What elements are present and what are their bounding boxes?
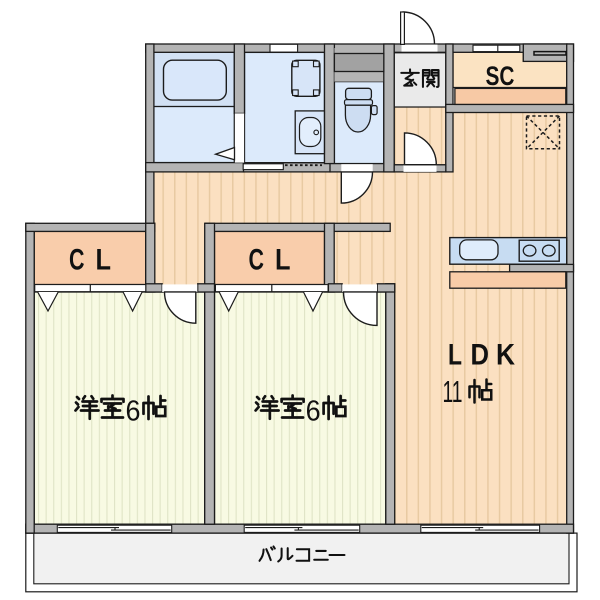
svg-text:6: 6 [126, 396, 141, 428]
svg-text:K: K [496, 339, 515, 372]
svg-text:6: 6 [306, 396, 321, 428]
svg-text:L: L [96, 244, 112, 277]
svg-text:D: D [471, 339, 490, 372]
svg-text:L: L [448, 339, 462, 372]
svg-text:11: 11 [443, 374, 463, 409]
svg-text:C: C [69, 244, 85, 277]
svg-text:SC: SC [486, 61, 515, 91]
svg-text:L: L [275, 244, 291, 277]
svg-text:C: C [249, 244, 265, 277]
